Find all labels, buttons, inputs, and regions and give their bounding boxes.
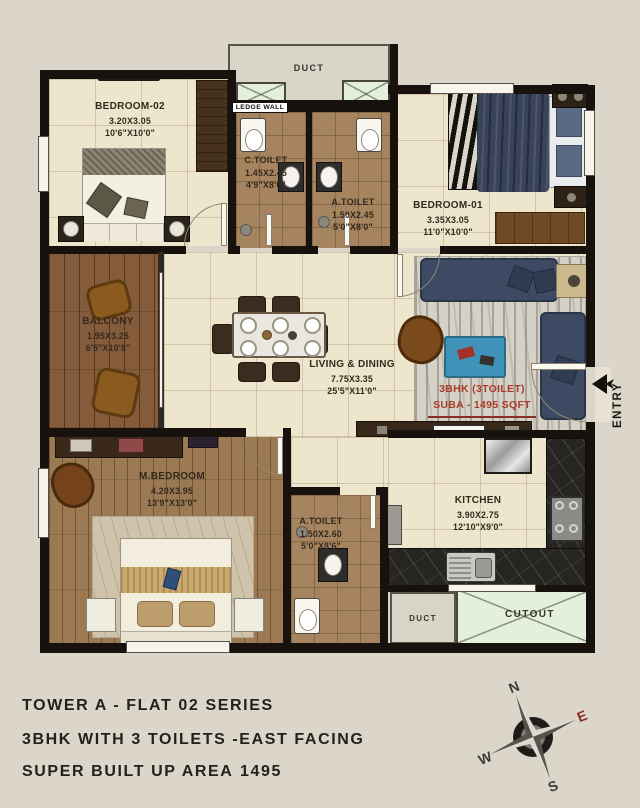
room-name: A.TOILET <box>288 515 354 528</box>
nightstand <box>86 598 116 632</box>
wall <box>350 246 398 254</box>
bed-pillow <box>137 601 173 627</box>
room-dim-m: 1.50X2.60 <box>288 528 354 540</box>
room-name: BEDROOM-01 <box>406 199 490 214</box>
coffee-table-item <box>457 346 475 360</box>
room-dim-ft: 25'5"X11'0" <box>298 385 406 397</box>
sofa-pillow <box>507 265 535 293</box>
room-label-living-dining: LIVING & DINING 7.75X3.35 25'5"X11'0" <box>298 358 406 397</box>
table-dish <box>262 330 272 340</box>
coffee-table <box>444 336 506 378</box>
zebra-rug <box>448 86 478 190</box>
toilet-wc <box>356 118 382 152</box>
dining-table <box>232 312 326 358</box>
wall <box>272 246 318 254</box>
toilet-wc <box>240 118 266 152</box>
room-dim-m: 3.90X2.75 <box>436 509 520 521</box>
window <box>126 641 230 653</box>
entry-label-wrap: ENTRY <box>612 428 640 440</box>
side-table-item <box>568 275 580 287</box>
footer-line-3: SUPER BUILT UP AREA <box>22 763 233 781</box>
table-dish <box>288 331 297 340</box>
door-leaf <box>221 203 227 246</box>
wall <box>283 487 340 495</box>
dining-chair <box>238 362 266 382</box>
toilet-wc <box>294 598 320 634</box>
room-name: A.TOILET <box>316 196 390 209</box>
compass-needles <box>473 677 593 797</box>
wash-basin <box>318 548 348 582</box>
footer-line-2: 3BHK WITH 3 TOILETS -EAST FACING <box>22 731 364 749</box>
dining-chair <box>272 362 300 382</box>
bed-duvet <box>477 90 549 192</box>
bed-bedroom-01 <box>549 96 587 188</box>
burner <box>555 501 564 510</box>
compass-east-label: E <box>575 707 590 725</box>
nightstand <box>234 598 264 632</box>
wall <box>586 422 595 652</box>
console-item <box>377 426 387 434</box>
door-leaf <box>266 214 272 246</box>
burner <box>569 501 578 510</box>
compass-icon: N E S W <box>462 672 602 802</box>
footer-area-value: 1495 <box>240 763 282 781</box>
room-dim-m: 3.35X3.05 <box>406 214 490 226</box>
stove <box>550 496 584 542</box>
footer-line-1: TOWER A - FLAT 02 SERIES <box>22 697 274 715</box>
coffee-table-item <box>479 355 494 366</box>
nightstand-top <box>63 221 79 237</box>
room-dim-m: 1.95X3.25 <box>66 330 150 342</box>
wall <box>40 246 186 254</box>
wall <box>40 428 246 437</box>
door-leaf <box>277 437 283 475</box>
room-dim-ft: 4'9"X8'0" <box>226 179 306 191</box>
window <box>38 136 49 192</box>
window <box>430 83 514 94</box>
wash-basin <box>316 162 342 192</box>
bed-m-bedroom <box>120 538 232 645</box>
wardrobe-bedroom-02 <box>196 80 228 172</box>
room-dim-m: 1.45X2.45 <box>226 167 306 179</box>
room-name: M.BEDROOM <box>128 470 216 485</box>
room-label-a-toilet-top: A.TOILET 1.50X2.45 5'0"X8'0" <box>316 196 390 234</box>
plate <box>304 340 321 357</box>
cutout-label: CUTOUT <box>488 609 572 620</box>
wc-bowl <box>299 609 317 631</box>
basin-bowl <box>324 554 342 576</box>
room-label-m-bedroom: M.BEDROOM 4.20X3.95 13'9"X13'0" <box>128 470 216 509</box>
wc-bowl <box>245 129 263 151</box>
unit-type: 3BHK (3TOILET) <box>428 382 536 398</box>
wall <box>388 430 595 438</box>
room-name: C.TOILET <box>226 154 306 167</box>
room-dim-ft: 10'6"X10'0" <box>60 127 200 139</box>
sink-drainboard <box>449 557 471 579</box>
bed-pillow <box>86 182 122 218</box>
balcony-slider-glass <box>159 272 163 408</box>
window <box>38 468 49 538</box>
door-leaf <box>397 254 403 297</box>
compass-south-label: S <box>546 777 561 795</box>
wall <box>440 246 595 254</box>
bed-bedroom-02 <box>82 148 166 240</box>
sink-bowl <box>475 558 492 578</box>
room-dim-ft: 5'0"X8'6" <box>288 540 354 552</box>
window <box>584 110 595 176</box>
fridge <box>484 438 532 474</box>
room-label-balcony: BALCONY 1.95X3.25 6'5"X10'8" <box>66 315 150 354</box>
duct-top-label: DUCT <box>276 63 342 73</box>
room-label-a-toilet-bottom: A.TOILET 1.50X2.60 5'0"X8'6" <box>288 515 354 553</box>
room-dim-m: 7.75X3.35 <box>298 373 406 385</box>
bed-pillow <box>556 105 582 137</box>
room-dim-ft: 12'10"X9'0" <box>436 521 520 533</box>
door-leaf-entry <box>531 363 586 370</box>
burner <box>555 524 564 533</box>
room-dim-ft: 11'0"X10'0" <box>406 226 490 238</box>
wall <box>40 643 595 653</box>
sofa-pillow <box>532 268 558 294</box>
wc-bowl <box>361 129 379 151</box>
footboard-block <box>554 186 588 208</box>
dining-chair <box>212 324 234 354</box>
kitchen-sink <box>446 552 496 582</box>
footboard-knob <box>567 193 576 202</box>
room-label-bedroom-02: BEDROOM-02 3.20X3.05 10'6"X10'0" <box>60 100 200 139</box>
plate <box>272 317 289 334</box>
room-dim-m: 4.20X3.95 <box>128 485 216 497</box>
room-name: BALCONY <box>66 315 150 330</box>
wardrobe-item <box>118 438 144 453</box>
plate <box>304 317 321 334</box>
entry-arrow-icon <box>592 374 607 394</box>
bed-headboard <box>83 223 165 241</box>
bed-pillow <box>556 145 582 177</box>
compass-west-label: W <box>476 748 495 768</box>
plate <box>240 340 257 357</box>
unit-area: SUBA - 1495 SQFT <box>428 398 536 414</box>
wall <box>40 70 236 79</box>
nightstand <box>58 216 84 242</box>
room-name: KITCHEN <box>436 494 520 509</box>
door-leaf <box>370 495 376 529</box>
room-dim-ft: 6'5"X10'8" <box>66 342 150 354</box>
burner <box>569 524 578 533</box>
room-dim-ft: 5'0"X8'0" <box>316 221 390 233</box>
duct-bottom-label: DUCT <box>390 614 456 623</box>
wall <box>390 44 398 254</box>
nightstand-top <box>169 221 185 237</box>
room-dim-m: 1.50X2.45 <box>316 209 390 221</box>
compass-north-label: N <box>506 678 521 697</box>
bed-blanket <box>83 149 165 175</box>
dresser <box>495 212 585 244</box>
plate <box>272 340 289 357</box>
bed-pillow <box>179 601 215 627</box>
room-dim-ft: 13'9"X13'0" <box>128 497 216 509</box>
unit-annotation: 3BHK (3TOILET) SUBA - 1495 SQFT <box>428 382 536 418</box>
sofa <box>420 258 558 302</box>
window <box>448 584 536 592</box>
wall <box>306 112 312 254</box>
room-name: LIVING & DINING <box>298 358 406 373</box>
wall <box>228 246 240 254</box>
room-label-bedroom-01: BEDROOM-01 3.35X3.05 11'0"X10'0" <box>406 199 490 238</box>
room-name: BEDROOM-02 <box>60 100 200 115</box>
room-label-c-toilet: C.TOILET 1.45X2.45 4'9"X8'0" <box>226 154 306 192</box>
room-dim-m: 3.20X3.05 <box>60 115 200 127</box>
entry-label: ENTRY <box>612 348 624 428</box>
wardrobe-item <box>70 439 92 452</box>
bed-pillow <box>123 197 148 219</box>
wall <box>380 487 388 652</box>
room-label-kitchen: KITCHEN 3.90X2.75 12'10"X9'0" <box>436 494 520 533</box>
ledge-wall-label: LEDGE WALL <box>232 102 288 113</box>
basin-bowl <box>320 166 338 188</box>
plate <box>240 317 257 334</box>
